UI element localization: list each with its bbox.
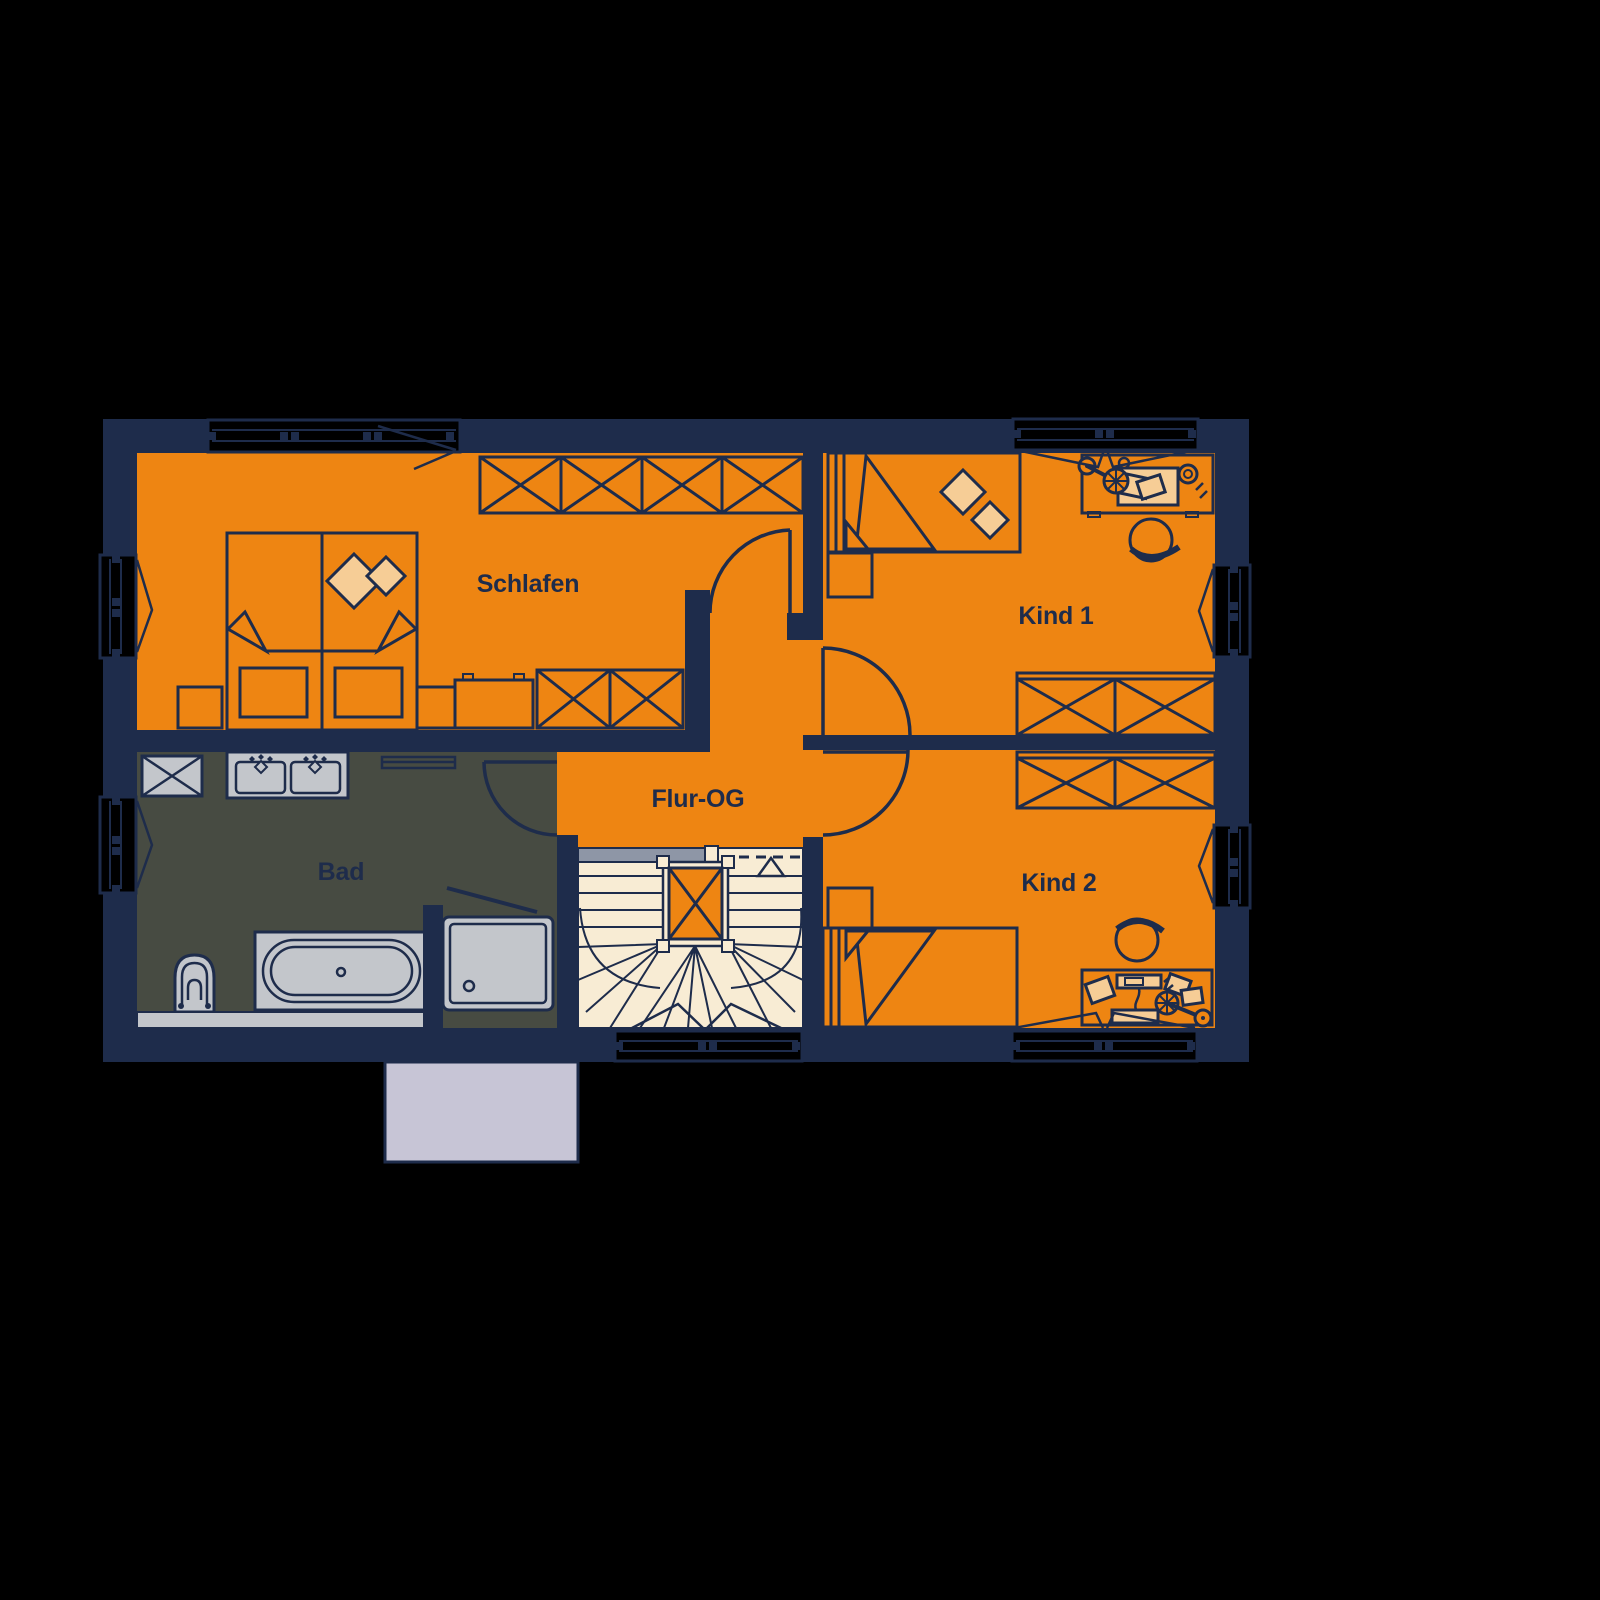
wall-flur-kind2 — [803, 837, 823, 1028]
wall-stub-shower — [423, 905, 443, 1028]
wall-flur-kind1 — [803, 453, 823, 640]
paper-icon — [1181, 988, 1203, 1006]
wall-stub-schlafen — [685, 590, 710, 730]
single-bed-icon — [828, 453, 1020, 552]
landing-edge — [578, 848, 707, 862]
double-bed-icon — [227, 533, 417, 730]
room-label-flur: Flur-OG — [651, 785, 744, 813]
wardrobe-icon — [480, 457, 803, 513]
wall-junction — [803, 735, 823, 750]
wall-bad-stairs — [557, 835, 578, 1028]
room-label-schlafen: Schlafen — [477, 570, 580, 598]
wall-right — [1215, 419, 1249, 1062]
bath-ledge — [137, 1012, 428, 1028]
dresser-icon — [455, 674, 533, 728]
cabinet-icon — [537, 670, 683, 728]
wall-kind1-kind2 — [823, 735, 1215, 750]
wall-stub-door — [787, 613, 803, 640]
stair-void — [657, 856, 734, 952]
washing-machine-icon — [142, 756, 202, 796]
shower-icon — [443, 917, 553, 1010]
desk-icon — [1082, 455, 1213, 517]
room-label-kind2: Kind 2 — [1021, 869, 1096, 897]
monitor-icon — [1117, 975, 1161, 988]
wardrobe-icon — [1017, 752, 1215, 808]
floor-plan-og: Schlafen Kind 1 Kind 2 Flur-OG Bad — [0, 0, 1600, 1600]
floor-plan-canvas: Schlafen Kind 1 Kind 2 Flur-OG Bad — [0, 0, 1600, 1600]
wall-schlafen-bad — [103, 730, 710, 752]
toilet-icon — [175, 955, 214, 1012]
room-label-kind1: Kind 1 — [1018, 602, 1093, 630]
desk-icon — [1082, 970, 1212, 1025]
single-bed-icon — [823, 928, 1017, 1027]
room-label-bad: Bad — [318, 858, 365, 886]
bathtub-icon — [255, 932, 428, 1010]
double-sink-vanity-icon — [227, 752, 348, 798]
terrace-roof-below — [385, 1062, 578, 1162]
wardrobe-icon — [1017, 673, 1215, 735]
